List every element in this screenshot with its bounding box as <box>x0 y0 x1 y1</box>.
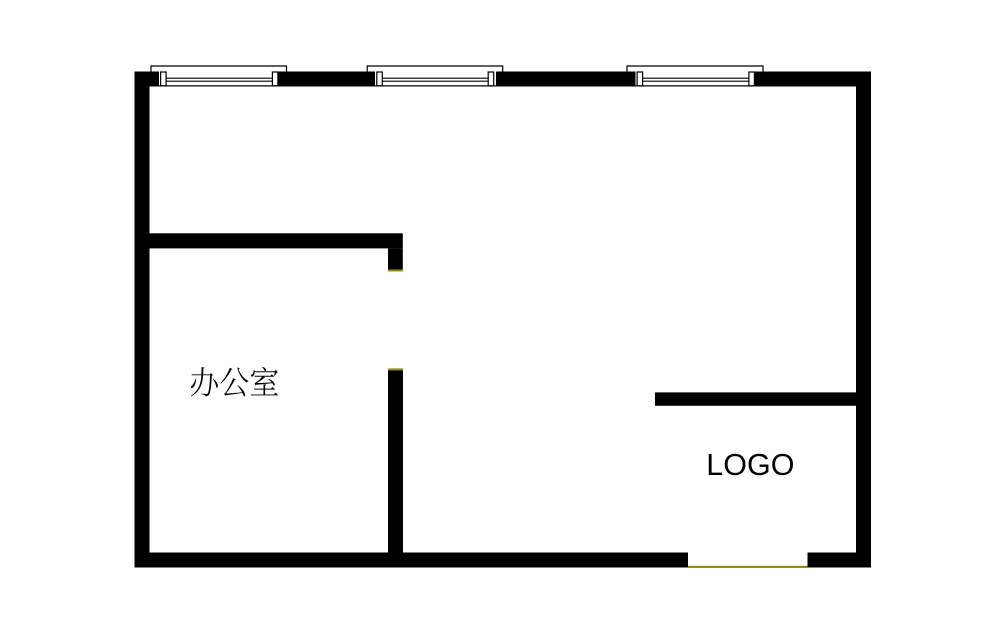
svg-text:LOGO: LOGO <box>706 448 794 482</box>
